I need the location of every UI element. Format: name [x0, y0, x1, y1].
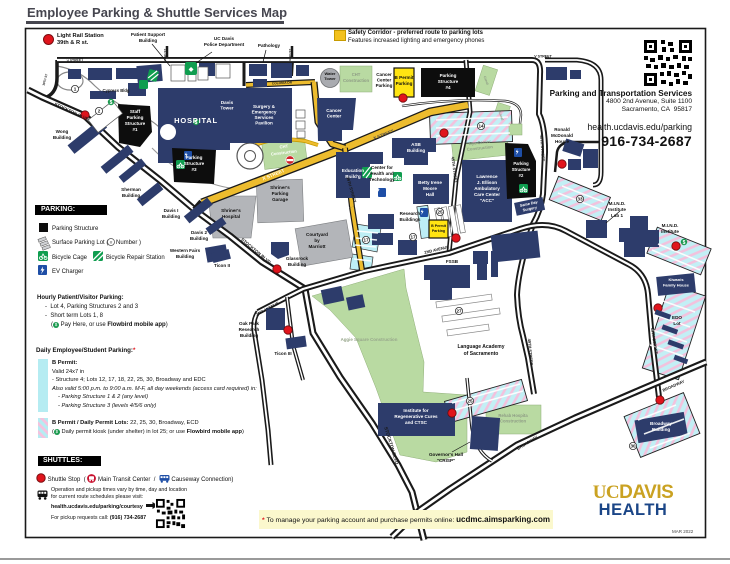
- svg-text:Technology: Technology: [369, 177, 395, 182]
- svg-text:17: 17: [410, 235, 416, 240]
- svg-text:Sherman: Sherman: [121, 187, 141, 192]
- svg-text:Parking Structure: Parking Structure: [52, 226, 99, 232]
- svg-text:Staff: Staff: [130, 109, 141, 114]
- svg-text:Aggie Square Construction: Aggie Square Construction: [341, 337, 398, 342]
- svg-text:1: 1: [74, 87, 77, 92]
- svg-text:Lot: Lot: [673, 321, 681, 326]
- svg-text:Institute: Institute: [608, 207, 626, 212]
- svg-text:Care Center: Care Center: [474, 192, 500, 197]
- svg-text:25: 25: [467, 399, 473, 404]
- svg-text:Parking: Parking: [186, 155, 203, 160]
- svg-text:Davis: Davis: [221, 100, 234, 105]
- svg-text:ASB: ASB: [411, 142, 421, 147]
- svg-text:Ambulatory: Ambulatory: [474, 186, 500, 191]
- svg-text:UC Davis: UC Davis: [214, 36, 235, 41]
- svg-text:HOSPITAL: HOSPITAL: [174, 116, 218, 125]
- svg-text:Oak Park: Oak Park: [239, 321, 259, 326]
- svg-text:Bicycle Repair Station: Bicycle Repair Station: [106, 255, 165, 261]
- svg-text:Shriner's: Shriner's: [270, 185, 290, 190]
- svg-text:Cancer: Cancer: [376, 72, 392, 77]
- svg-text:Shriner's: Shriner's: [221, 208, 241, 213]
- svg-text:#2: #2: [519, 173, 524, 178]
- svg-text:#: #: [110, 240, 113, 245]
- svg-text:17: 17: [363, 238, 369, 243]
- svg-text:Governor's Hall: Governor's Hall: [429, 452, 463, 457]
- svg-text:Tower: Tower: [324, 76, 336, 81]
- svg-text:Broadway: Broadway: [650, 421, 672, 426]
- svg-text:27: 27: [456, 309, 462, 314]
- svg-text:Davis I: Davis I: [164, 208, 179, 213]
- svg-text:Institute for: Institute for: [403, 408, 428, 413]
- svg-text:V STREET: V STREET: [534, 55, 552, 59]
- svg-text:Parking: Parking: [272, 191, 289, 196]
- svg-text:◆: ◆: [188, 66, 194, 73]
- svg-text:#1: #1: [132, 127, 138, 132]
- svg-text:Services: Services: [255, 115, 274, 120]
- svg-text:EDO: EDO: [672, 315, 682, 320]
- svg-text:Parking: Parking: [432, 229, 445, 233]
- svg-text:Surgery &: Surgery &: [253, 104, 276, 109]
- svg-text:Bicycle Cage: Bicycle Cage: [52, 255, 88, 261]
- svg-text:Research: Research: [239, 327, 260, 332]
- svg-text:Buildings: Buildings: [400, 217, 421, 222]
- svg-text:Ticon II: Ticon II: [214, 263, 230, 268]
- svg-text:Marriott: Marriott: [308, 244, 326, 249]
- svg-text:Language Academy: Language Academy: [457, 344, 504, 350]
- svg-text:FSSB: FSSB: [446, 259, 459, 264]
- svg-text:Structure: Structure: [125, 121, 146, 126]
- svg-text:Hospital: Hospital: [222, 214, 240, 219]
- svg-text:Patient Support: Patient Support: [131, 32, 166, 37]
- svg-text:by: by: [314, 238, 320, 243]
- svg-text:43RD ST: 43RD ST: [288, 49, 292, 62]
- svg-text:Glassrock: Glassrock: [286, 256, 309, 261]
- svg-text:Center: Center: [377, 78, 392, 83]
- svg-text:Wong: Wong: [56, 129, 69, 134]
- svg-text:Tower: Tower: [220, 106, 233, 111]
- svg-text:Emergency: Emergency: [252, 110, 277, 115]
- svg-text:Kiwanis: Kiwanis: [668, 277, 684, 282]
- svg-text:Construction: Construction: [343, 78, 369, 83]
- svg-text:Building: Building: [652, 427, 671, 432]
- svg-text:Courtyard: Courtyard: [306, 232, 328, 237]
- svg-text:33: 33: [577, 197, 583, 202]
- svg-text:$: $: [110, 100, 113, 106]
- svg-text:Building: Building: [122, 193, 141, 198]
- svg-text:Lab 1: Lab 1: [611, 213, 623, 218]
- svg-text:M.I.N.D.: M.I.N.D.: [662, 223, 679, 228]
- svg-text:Pavilion: Pavilion: [255, 121, 273, 126]
- svg-text:Number ): Number ): [116, 240, 141, 246]
- svg-text:Structure: Structure: [512, 167, 531, 172]
- svg-text:Building: Building: [407, 148, 426, 153]
- svg-text:Building: Building: [139, 38, 158, 43]
- svg-text:Center: Center: [327, 114, 342, 119]
- svg-text:Rehab Hospita: Rehab Hospita: [498, 413, 528, 418]
- svg-text:2: 2: [98, 109, 101, 114]
- svg-text:Building: Building: [53, 135, 72, 140]
- svg-text:B Permit: B Permit: [395, 75, 414, 80]
- svg-text:Police Department: Police Department: [204, 42, 245, 47]
- svg-text:B Permit: B Permit: [431, 224, 447, 228]
- svg-text:M.I.N.D.: M.I.N.D.: [609, 201, 626, 206]
- svg-text:30: 30: [630, 444, 636, 449]
- svg-text:Parking: Parking: [376, 83, 393, 88]
- svg-text:Lawrence: Lawrence: [476, 174, 498, 179]
- svg-text:Regenerative Cures: Regenerative Cures: [394, 414, 438, 419]
- svg-text:#3: #3: [191, 167, 197, 172]
- svg-text:EV Charger: EV Charger: [52, 269, 83, 275]
- svg-text:J. Ellison: J. Ellison: [477, 180, 497, 185]
- svg-text:Institute: Institute: [661, 229, 679, 234]
- svg-text:and CTSC: and CTSC: [405, 420, 428, 425]
- svg-text:Building: Building: [162, 214, 181, 219]
- svg-text:Garage: Garage: [272, 197, 288, 202]
- svg-text:Ticon III: Ticon III: [274, 351, 291, 356]
- svg-text:Parking: Parking: [440, 73, 457, 78]
- svg-text:Construction: Construction: [500, 419, 526, 424]
- svg-text:Pathology: Pathology: [258, 43, 281, 48]
- svg-text:$: $: [683, 240, 686, 246]
- svg-text:Moore: Moore: [423, 186, 437, 191]
- svg-text:42ND ST: 42ND ST: [163, 49, 167, 62]
- svg-text:CHT: CHT: [352, 72, 361, 77]
- svg-text:Cypress Bldg: Cypress Bldg: [103, 88, 130, 93]
- svg-text:"CRISP": "CRISP": [437, 458, 455, 463]
- svg-text:Surface Parking Lot (: Surface Parking Lot (: [52, 240, 108, 246]
- svg-text:Family House: Family House: [663, 283, 690, 288]
- svg-text:Betty Irene: Betty Irene: [418, 180, 442, 185]
- svg-text:Parking: Parking: [127, 115, 144, 120]
- svg-text:Parking: Parking: [513, 161, 529, 166]
- svg-text:Education: Education: [342, 168, 364, 173]
- svg-text:Structure: Structure: [184, 161, 205, 166]
- svg-text:Health and: Health and: [370, 171, 394, 176]
- svg-text:Building: Building: [288, 262, 307, 267]
- svg-text:Center for: Center for: [371, 165, 393, 170]
- svg-text:Structure: Structure: [438, 79, 459, 84]
- svg-text:Parking: Parking: [396, 81, 413, 86]
- svg-text:Cancer: Cancer: [326, 108, 342, 113]
- svg-text:25: 25: [437, 210, 443, 215]
- svg-text:Hall: Hall: [426, 192, 434, 197]
- svg-text:Research: Research: [400, 211, 421, 216]
- svg-text:Building: Building: [240, 333, 259, 338]
- svg-text:"ACC": "ACC": [480, 198, 494, 203]
- svg-text:of Sacramento: of Sacramento: [464, 351, 499, 357]
